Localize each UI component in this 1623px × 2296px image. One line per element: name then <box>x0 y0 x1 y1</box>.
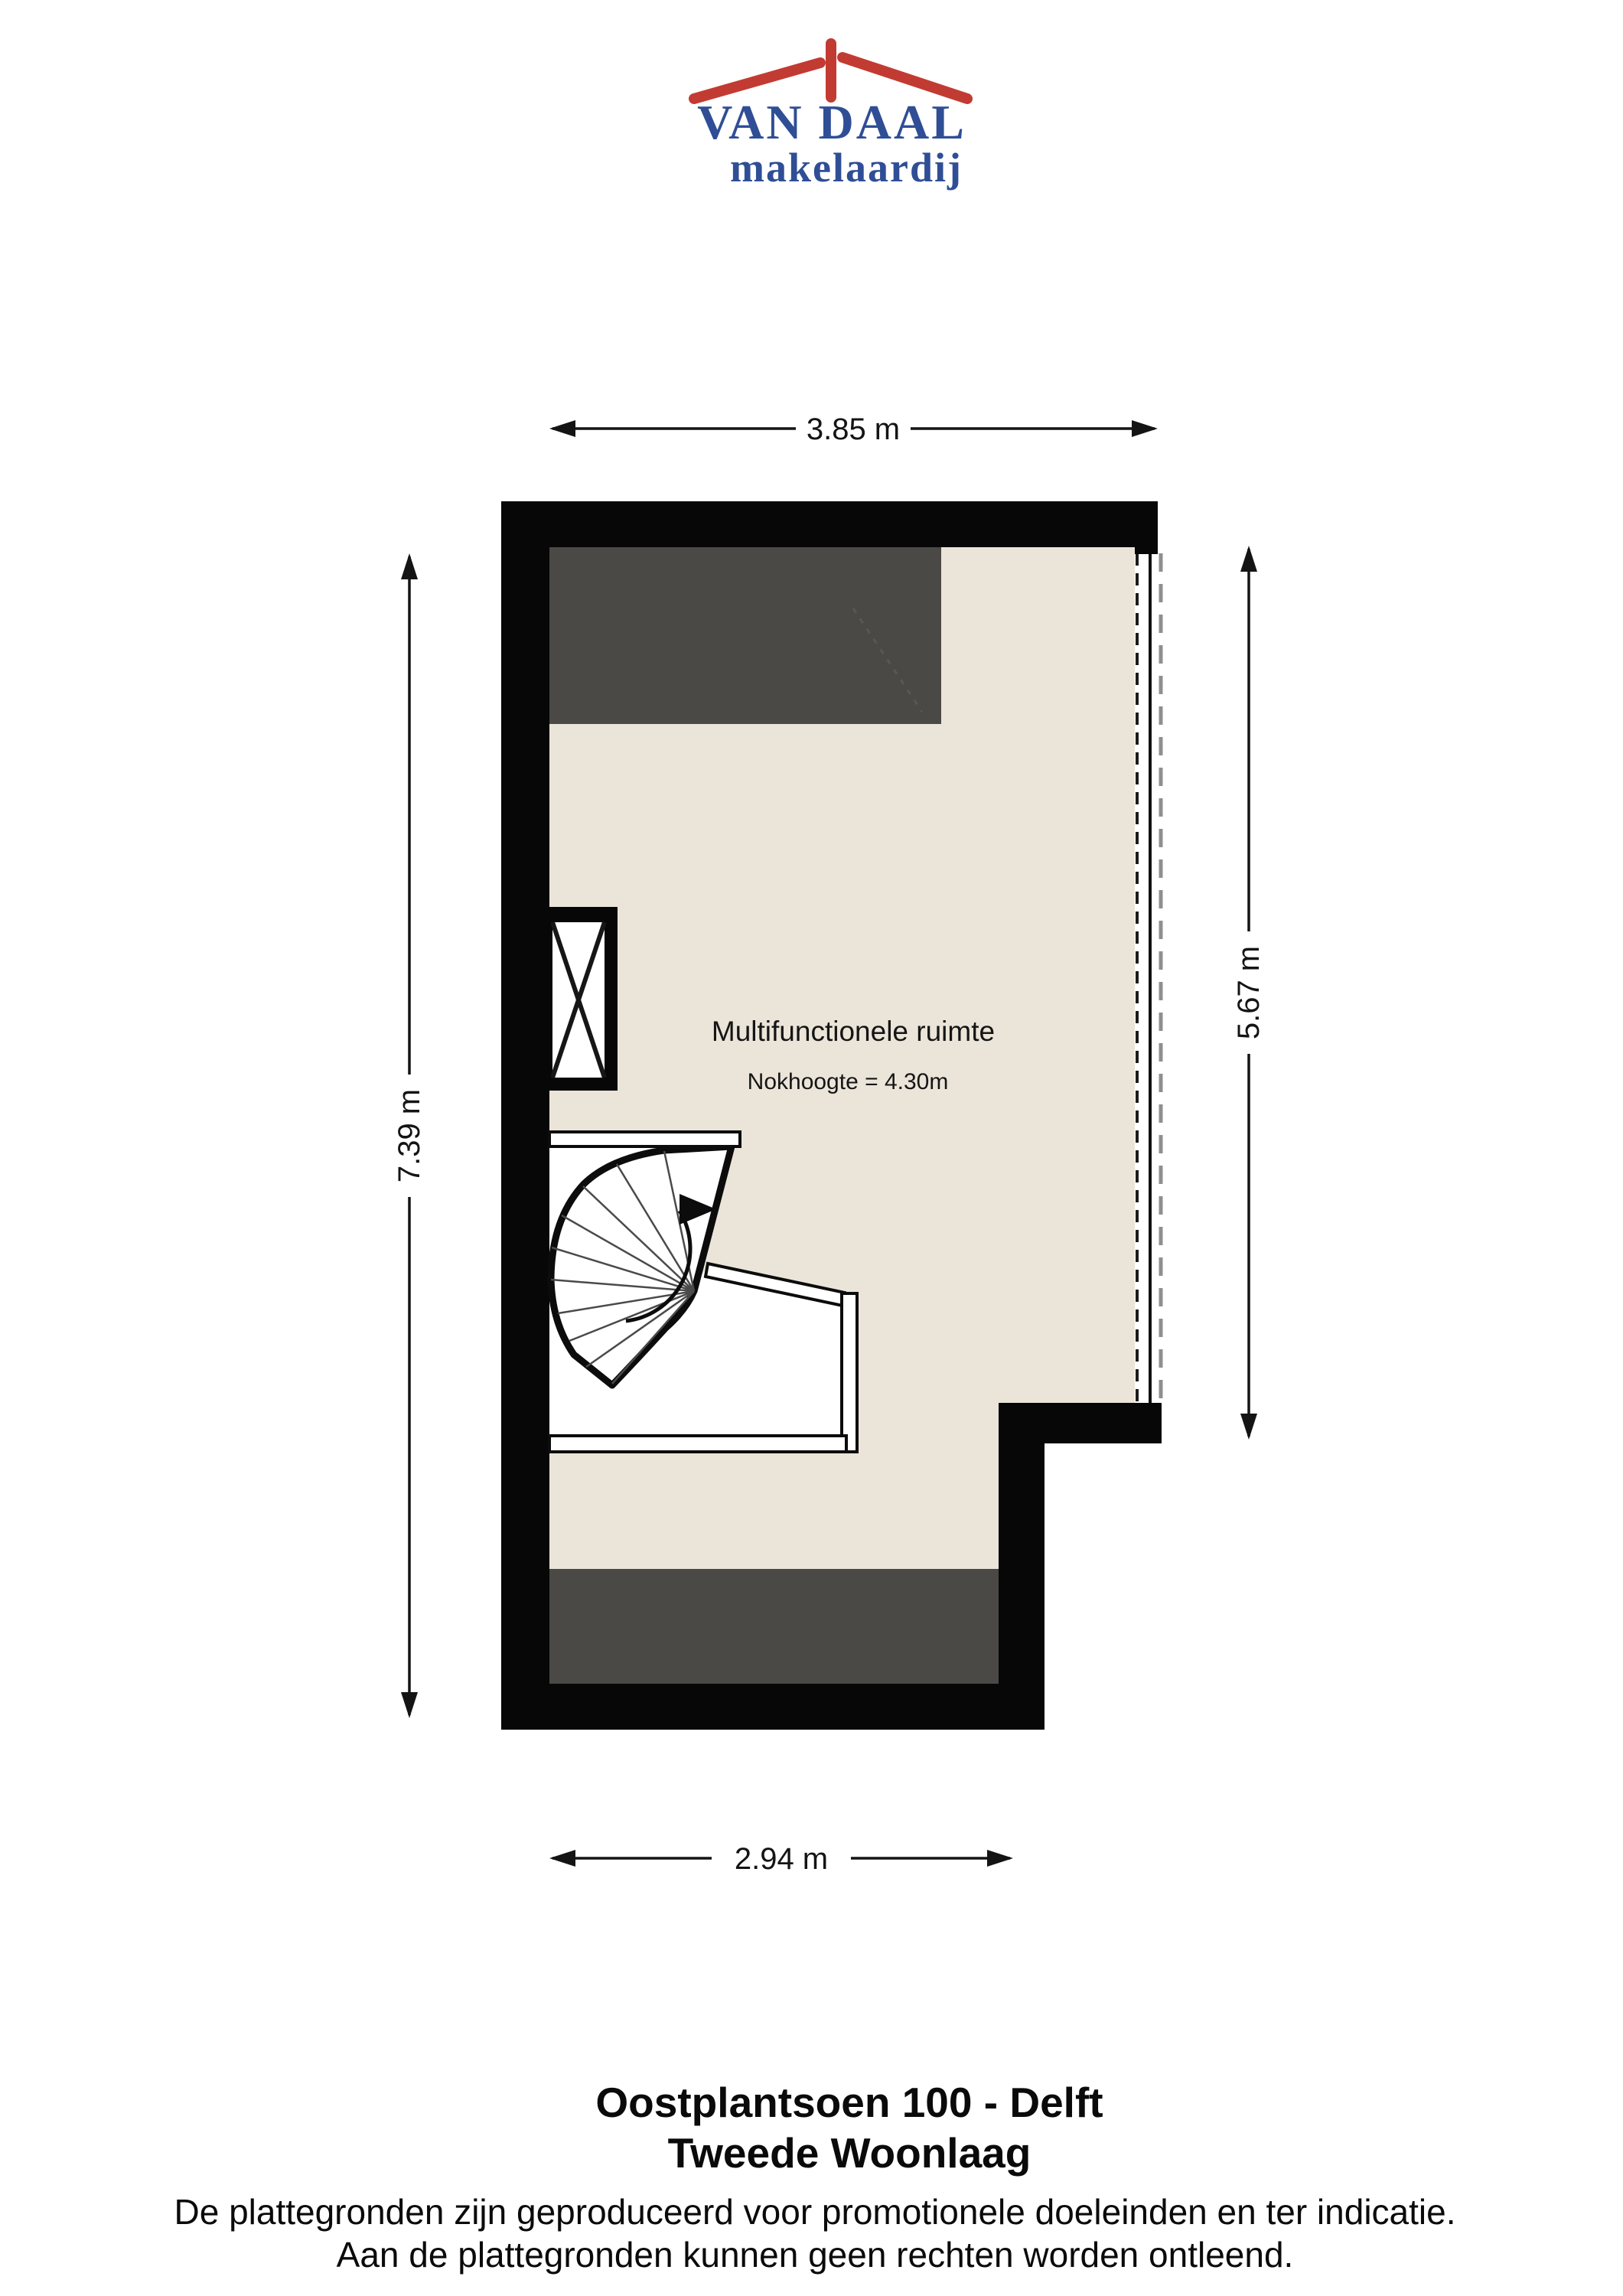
footer-address: Oostplantsoen 100 - Delft <box>595 2079 1103 2126</box>
stair-railing-top <box>549 1132 740 1146</box>
footer: Oostplantsoen 100 - Delft Tweede Woonlaa… <box>174 2079 1455 2275</box>
arrowhead-up-icon <box>401 553 418 579</box>
wall-notch <box>999 1403 1162 1443</box>
logo-subtitle: makelaardij <box>730 145 963 191</box>
roof-slope-area-bottom <box>549 1569 999 1684</box>
dimension-top: 3.85 m <box>549 413 1158 446</box>
wall-right-lower <box>999 1403 1045 1730</box>
disclaimer-line-1: De plattegronden zijn geproduceerd voor … <box>174 2192 1455 2232</box>
stair-railing-bottom <box>549 1436 846 1452</box>
facade-dashed-wall <box>1135 553 1161 1403</box>
arrowhead-left-icon <box>549 420 575 437</box>
logo-title: VAN DAAL <box>697 95 966 149</box>
roof-slope-area-top <box>549 547 941 724</box>
room-label: Multifunctionele ruimte <box>712 1016 995 1047</box>
wall-top <box>501 501 1158 547</box>
stair-railing-right <box>842 1293 857 1452</box>
dimension-left: 7.39 m <box>393 553 426 1718</box>
footer-floor-name: Tweede Woonlaag <box>668 2129 1031 2177</box>
dimension-top-label: 3.85 m <box>807 413 900 446</box>
dimension-left-label: 7.39 m <box>393 1089 426 1182</box>
roof-right-slope-icon <box>842 57 967 99</box>
dimension-bottom: 2.94 m <box>549 1842 1013 1876</box>
chimney-shaft <box>549 907 618 1091</box>
arrowhead-down-icon <box>401 1692 418 1718</box>
wall-left <box>501 501 549 1730</box>
roof-left-slope-icon <box>694 63 820 99</box>
room-height-label: Nokhoogte = 4.30m <box>748 1069 949 1094</box>
arrowhead-right-icon <box>987 1850 1013 1867</box>
dimension-right-label: 5.67 m <box>1232 946 1266 1039</box>
floorplan-page: VAN DAAL makelaardij <box>0 0 1623 2296</box>
arrowhead-right-icon <box>1132 420 1158 437</box>
arrowhead-left-icon <box>549 1850 575 1867</box>
floor-plan: Multifunctionele ruimte Nokhoogte = 4.30… <box>501 501 1162 1730</box>
dimension-right: 5.67 m <box>1232 546 1266 1440</box>
van-daal-logo: VAN DAAL makelaardij <box>694 44 967 191</box>
arrowhead-up-icon <box>1240 546 1257 572</box>
wall-bottom <box>501 1684 1045 1730</box>
wall-top-right-stub <box>1135 545 1158 554</box>
dimension-bottom-label: 2.94 m <box>735 1842 828 1876</box>
arrowhead-down-icon <box>1240 1414 1257 1440</box>
disclaimer-line-2: Aan de plattegronden kunnen geen rechten… <box>337 2235 1294 2275</box>
